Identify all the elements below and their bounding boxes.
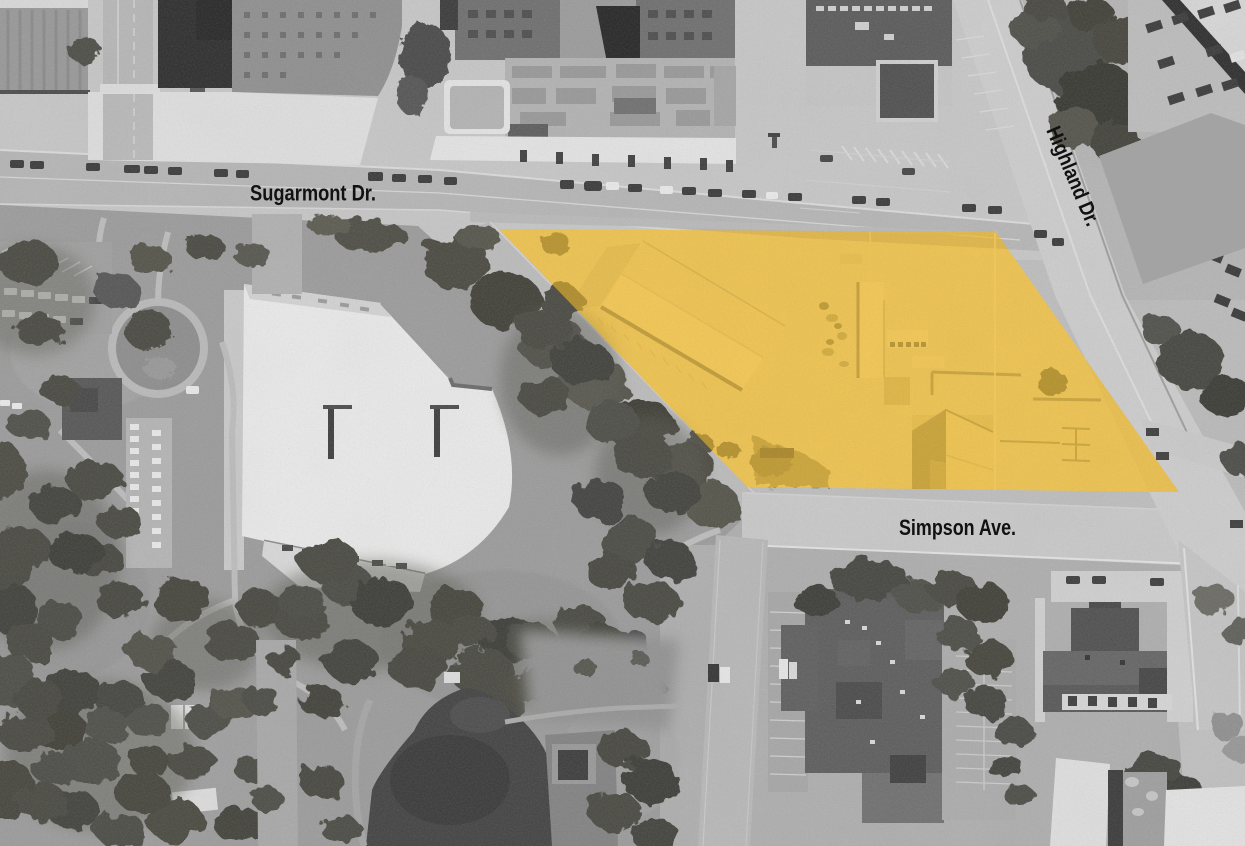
svg-text:Simpson Ave.: Simpson Ave. (899, 515, 1016, 540)
svg-text:Sugarmont Dr.: Sugarmont Dr. (250, 181, 376, 206)
